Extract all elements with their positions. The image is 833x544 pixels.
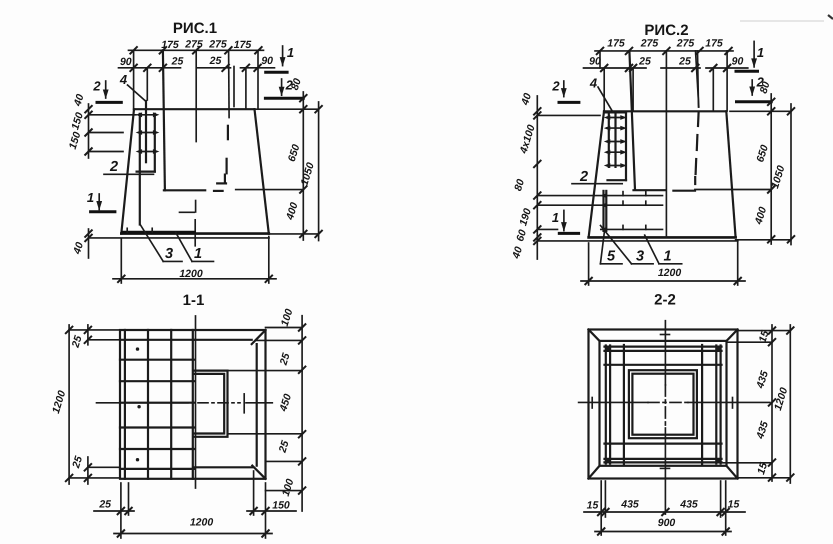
svg-text:190: 190 [517, 207, 534, 227]
svg-text:90: 90 [120, 56, 132, 68]
svg-text:4: 4 [589, 76, 598, 91]
svg-text:80: 80 [758, 80, 773, 95]
svg-text:25: 25 [70, 455, 85, 471]
svg-text:150: 150 [69, 111, 86, 131]
svg-text:100: 100 [279, 307, 296, 327]
svg-text:25: 25 [98, 499, 111, 511]
svg-text:1: 1 [552, 210, 559, 225]
svg-text:1: 1 [194, 246, 202, 262]
svg-text:40: 40 [510, 245, 525, 261]
svg-text:15: 15 [728, 499, 740, 511]
svg-text:1200: 1200 [658, 267, 682, 279]
svg-text:275: 275 [640, 38, 659, 50]
svg-text:1-1: 1-1 [183, 292, 205, 309]
svg-text:40: 40 [519, 92, 534, 108]
svg-text:400: 400 [752, 205, 769, 226]
svg-text:400: 400 [284, 201, 301, 222]
svg-text:1050: 1050 [299, 161, 317, 187]
svg-text:90: 90 [732, 55, 744, 67]
svg-text:25: 25 [171, 55, 184, 67]
svg-text:1: 1 [757, 45, 764, 60]
svg-text:40: 40 [71, 241, 86, 257]
svg-text:80: 80 [512, 178, 527, 193]
svg-text:1200: 1200 [50, 389, 68, 415]
svg-text:25: 25 [277, 352, 292, 368]
svg-text:175: 175 [705, 38, 723, 50]
svg-text:2: 2 [551, 79, 560, 94]
svg-text:25: 25 [209, 55, 222, 67]
svg-text:4: 4 [119, 72, 128, 87]
svg-text:450: 450 [277, 392, 294, 413]
svg-text:3: 3 [636, 249, 644, 265]
svg-text:435: 435 [754, 369, 771, 390]
svg-text:175: 175 [234, 39, 252, 51]
svg-text:2: 2 [92, 79, 101, 94]
svg-text:100: 100 [280, 477, 297, 497]
svg-text:435: 435 [620, 499, 639, 511]
svg-text:РИС.1: РИС.1 [173, 20, 217, 37]
svg-text:25: 25 [678, 55, 691, 67]
svg-text:25: 25 [276, 439, 291, 455]
svg-text:650: 650 [754, 143, 771, 163]
svg-text:1200: 1200 [179, 268, 203, 280]
svg-text:40: 40 [71, 93, 86, 109]
svg-text:15: 15 [587, 499, 599, 511]
svg-text:80: 80 [289, 77, 304, 92]
svg-text:1200: 1200 [772, 386, 790, 412]
svg-text:275: 275 [184, 39, 203, 51]
svg-text:650: 650 [286, 143, 303, 163]
svg-text:60: 60 [514, 228, 529, 243]
svg-text:25: 25 [69, 334, 84, 350]
svg-text:РИС.2: РИС.2 [644, 22, 688, 39]
svg-text:150: 150 [67, 130, 84, 150]
svg-text:2: 2 [109, 159, 118, 175]
svg-text:435: 435 [754, 420, 771, 441]
svg-text:275: 275 [676, 38, 695, 50]
svg-text:1: 1 [87, 190, 94, 205]
svg-text:2: 2 [579, 169, 588, 185]
svg-text:900: 900 [658, 517, 676, 529]
svg-text:90: 90 [261, 55, 273, 67]
svg-text:150: 150 [272, 500, 290, 512]
svg-text:25: 25 [638, 56, 651, 68]
svg-text:275: 275 [208, 39, 227, 51]
svg-text:175: 175 [607, 38, 625, 50]
svg-text:5: 5 [607, 249, 616, 265]
svg-text:435: 435 [679, 499, 698, 511]
svg-text:1: 1 [287, 45, 294, 60]
svg-text:4х100: 4х100 [517, 123, 537, 156]
svg-text:2-2: 2-2 [654, 292, 676, 309]
svg-text:1: 1 [663, 249, 671, 265]
svg-text:1200: 1200 [190, 517, 214, 529]
svg-text:3: 3 [165, 246, 173, 262]
